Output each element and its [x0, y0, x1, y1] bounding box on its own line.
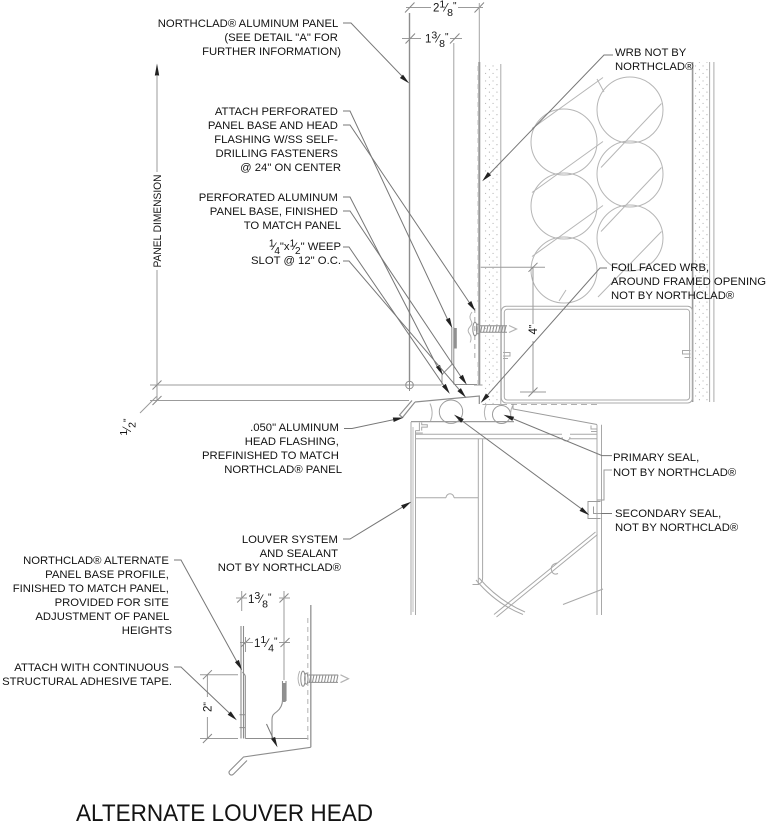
svg-text:4": 4"	[528, 324, 540, 334]
svg-text:PANEL DIMENSION: PANEL DIMENSION	[152, 175, 164, 268]
svg-text:ALTERNATE LOUVER HEAD: ALTERNATE LOUVER HEAD	[76, 800, 373, 822]
svg-text:2": 2"	[203, 702, 215, 712]
